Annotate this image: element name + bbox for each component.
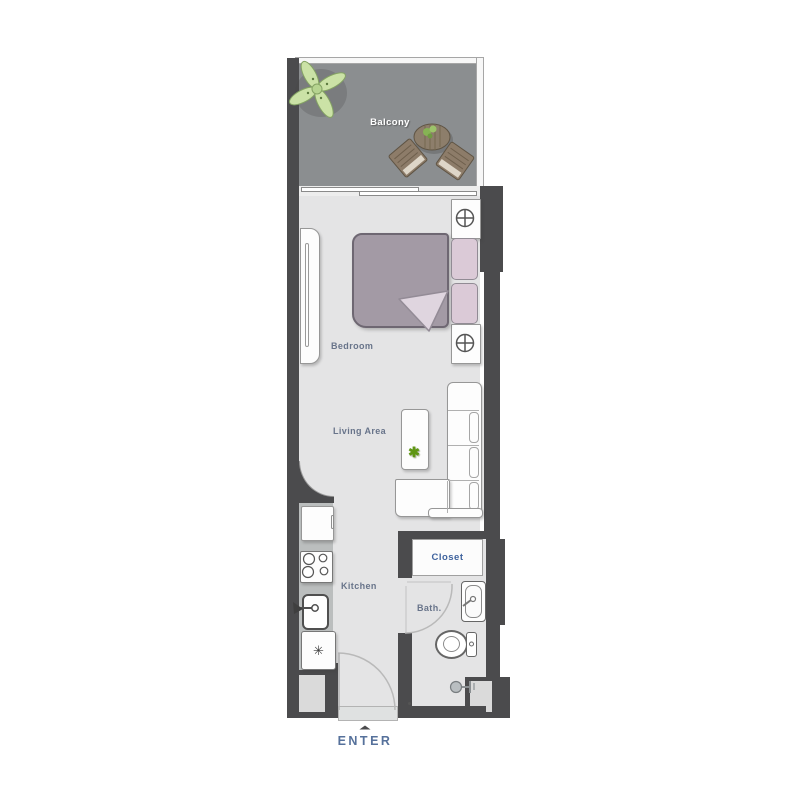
wall-right-closet [486,539,505,625]
fridge: ✳ [301,631,336,670]
sofa-armrest [428,508,483,518]
washer [301,506,334,541]
tv-console [300,228,320,364]
closet: Closet [412,539,483,576]
bath-label: Bath. [417,603,442,613]
wall-bath-partition [398,633,412,718]
kitchen-label: Kitchen [341,581,377,591]
toilet-tank [466,632,477,657]
wall-right-bedroom [480,186,503,272]
bedroom-label: Bedroom [331,341,373,351]
sofa-back-cushion [469,412,479,443]
balcony-rail-right [476,57,484,187]
sofa-back-cushion [469,482,479,510]
tv-screen [305,243,309,347]
kitchen-sink [302,594,329,630]
plant-icon: ✱ [403,444,425,461]
snowflake-icon: ✳ [313,643,324,659]
bathroom-sink-basin [465,585,482,618]
door-stop-dot [408,702,411,705]
wall-right-living [484,272,500,539]
bed [352,233,449,328]
living-area-label: Living Area [333,426,386,436]
wall-right-bath [486,625,500,680]
balcony-label: Balcony [360,117,420,128]
wall-closet-top [398,531,491,539]
enter-arrow-icon: ▲ [306,723,424,731]
sofa-back-cushion [469,447,479,478]
washer-handle [331,515,334,529]
closet-label: Closet [431,552,463,563]
stove [300,551,333,583]
nightstand [451,324,481,364]
entry-threshold [338,706,398,721]
pillow [451,283,478,324]
floor-plan: Closet ✱ ✳ [0,0,800,800]
wall-left [287,58,299,718]
toilet-bowl-inner [443,636,460,652]
shaft-bottom-left [299,675,325,712]
pillow [451,238,478,280]
enter-label: ENTER [337,734,393,748]
nightstand [451,199,481,239]
balcony-rail-top [295,57,482,64]
